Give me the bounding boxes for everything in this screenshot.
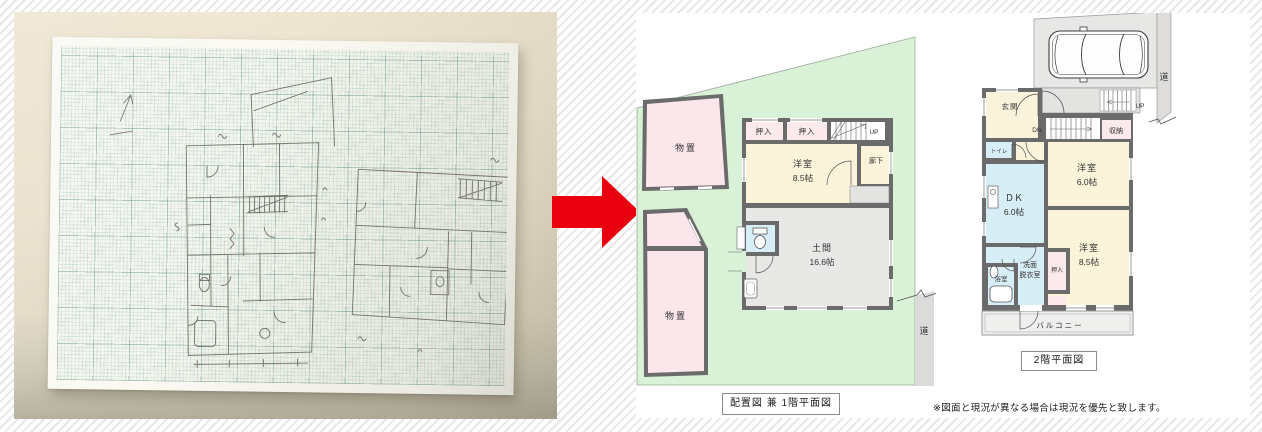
first-floor-site-plan: 道 物置 物置 [636, 13, 936, 418]
washroom-label: 脱衣室 [1020, 270, 1041, 279]
sketch-small-room [431, 271, 449, 295]
toilet-label: トイレ [991, 149, 1008, 155]
toilet-icon [753, 228, 767, 234]
storage-shed-top: 物置 [642, 94, 729, 191]
shed-label: 物置 [675, 142, 697, 153]
transform-arrow-icon [548, 170, 644, 254]
house-first-floor: UP 押入 押入 廊下 洋室 8.5帖 土間 16.6帖 [728, 118, 893, 310]
toilet-bowl-icon [755, 236, 766, 249]
entry-step [850, 186, 889, 203]
sketch-plan-right-outline [352, 169, 509, 325]
bathroom [984, 263, 1018, 311]
caption-first-floor: 配置図 兼 1階平面図 [722, 393, 840, 415]
stairs-up-label: UP [1135, 103, 1144, 110]
western-room-6-floor [1048, 142, 1129, 206]
parking-area [1034, 13, 1157, 88]
room-name: 土間 [812, 242, 832, 253]
graph-grid [57, 46, 510, 386]
caption-second-floor: 2階平面図 [1021, 351, 1097, 371]
room-name: 洋室 [1077, 162, 1097, 173]
storage-shed-bottom: 物置 [643, 208, 708, 377]
room-size: 8.5帖 [793, 173, 814, 183]
sketch-toilet-icon-2 [436, 277, 444, 287]
balcony-label: バルコニー [1036, 321, 1083, 330]
sketch-plan-left-outline [183, 141, 318, 357]
kitchen-unit-icon [988, 186, 998, 208]
sketch-stairs-right [458, 179, 502, 202]
closet-label: 押入 [799, 126, 816, 136]
page: 道 物置 物置 [0, 0, 1262, 432]
closet-label: 押入 [1051, 266, 1063, 274]
sketch-garage-lines [250, 77, 335, 148]
stairs-down-label: DN [1032, 127, 1042, 134]
storage-label: 収納 [1109, 126, 1123, 135]
sketch-door-arcs-right [355, 202, 490, 302]
closet-label: 押入 [756, 126, 773, 136]
bath-label: 浴室 [995, 274, 1009, 283]
graph-paper [48, 37, 519, 395]
room-size: 6.0帖 [1077, 177, 1098, 187]
room-size: 8.5帖 [1079, 257, 1100, 267]
entrance-label: 玄関 [1002, 101, 1019, 111]
sketch-stairs-left [247, 195, 287, 214]
sketch-bathtub-icon [194, 320, 215, 346]
room-size: 6.0帖 [1004, 207, 1025, 217]
disclaimer-note: ※図面と現況が異なる場合は現況を優先と致します。 [933, 400, 1166, 414]
shed-label: 物置 [665, 310, 687, 321]
road-label: 道 [919, 325, 928, 336]
washroom-label: 洗面 [1023, 260, 1037, 269]
house-second-floor: 玄関 DN 収納 トイレ 洋室 6.0帖 ＤＫ 6.0帖 洋室 8.5帖 洗面 … [982, 88, 1133, 311]
entrance-porch: UP [1042, 88, 1145, 113]
north-arrow-icon [110, 95, 133, 135]
sketch-plan-right-walls [354, 171, 509, 321]
sketch-door-arcs-left [189, 166, 287, 327]
sketch-number-scribbles [173, 132, 499, 353]
corridor-floor [861, 146, 889, 184]
room-size: 16.6帖 [809, 257, 835, 267]
sketch-photo [14, 12, 557, 419]
room-name: 洋室 [793, 158, 813, 169]
car-icon [1049, 27, 1148, 82]
entrance-floor [986, 92, 1038, 138]
sketch-plan-left-walls [184, 143, 317, 355]
bathtub-icon [990, 286, 1012, 302]
sketch-toilet-tank [199, 274, 209, 280]
sketch-closet-zigzag [230, 229, 234, 249]
corridor-label: 廊下 [869, 156, 883, 165]
stair-treads [1050, 118, 1092, 139]
stairs-label: UP [869, 129, 878, 136]
handdrawn-floorplan-sketch [57, 46, 510, 387]
washbasin-icon [744, 279, 757, 298]
room-name: ＤＫ [1005, 193, 1023, 203]
stairs-down-floor [1046, 118, 1100, 139]
hall-floor [1016, 142, 1044, 160]
room-name: 洋室 [1079, 242, 1099, 253]
sketch-basin-icon [260, 328, 270, 338]
road-label: 道 [1159, 71, 1168, 82]
sketch-dimension-ticks [194, 182, 509, 372]
sketch-toilet-icon [199, 277, 209, 291]
